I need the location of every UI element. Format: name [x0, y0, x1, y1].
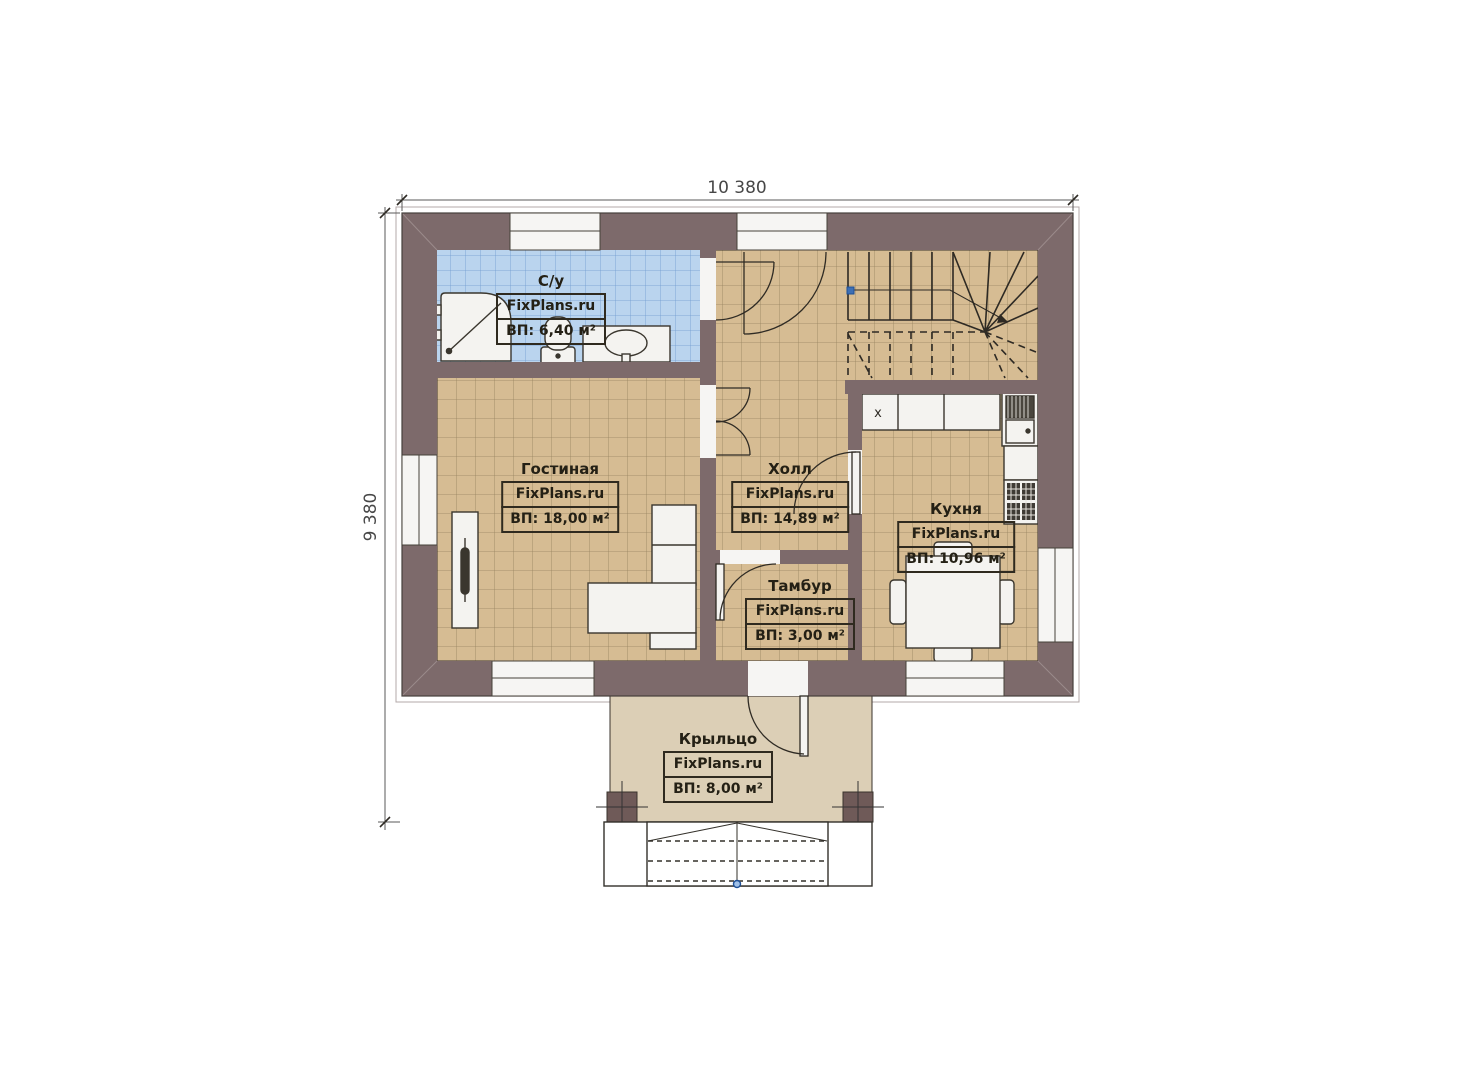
room-label-bathroom: С/у FixPlans.ru ВП: 6,40 м² — [496, 272, 606, 345]
stair-start-grip — [847, 287, 854, 294]
floor-plan-page: x 10 380 9 380 С/у FixPlans.ru ВП: 6,40 … — [0, 0, 1473, 1080]
opening-tambour — [720, 550, 780, 564]
room-name: Крыльцо — [663, 730, 773, 748]
watermark-box: FixPlans.ru — [731, 481, 849, 508]
room-name: Кухня — [897, 500, 1015, 518]
wall-bathroom-south — [437, 362, 716, 378]
opening-bathroom — [700, 258, 716, 320]
floor-plan-drawing: x — [0, 0, 1473, 1080]
watermark-box: FixPlans.ru — [501, 481, 619, 508]
window-bottom-living — [492, 661, 594, 696]
tv-stand — [452, 512, 478, 628]
room-name: С/у — [496, 272, 606, 290]
area-box: ВП: 14,89 м² — [731, 506, 849, 533]
area-box: ВП: 6,40 м² — [496, 318, 606, 345]
area-box: ВП: 8,00 м² — [663, 776, 773, 803]
window-top-bathroom — [510, 213, 600, 250]
room-label-hall: Холл FixPlans.ru ВП: 14,89 м² — [731, 460, 849, 533]
watermark-box: FixPlans.ru — [745, 598, 855, 625]
room-label-kitchen: Кухня FixPlans.ru ВП: 10,96 м² — [897, 500, 1015, 573]
room-label-living: Гостиная FixPlans.ru ВП: 18,00 м² — [501, 460, 619, 533]
window-left-living — [402, 455, 437, 545]
watermark-box: FixPlans.ru — [897, 521, 1015, 548]
area-box: ВП: 10,96 м² — [897, 546, 1015, 573]
watermark-box: FixPlans.ru — [496, 293, 606, 320]
fridge — [1002, 392, 1038, 446]
room-label-porch: Крыльцо FixPlans.ru ВП: 8,00 м² — [663, 730, 773, 803]
kitchen-counter — [862, 394, 1000, 430]
door-top-hall — [737, 213, 827, 250]
window-right-kitchen — [1038, 548, 1073, 642]
area-box: ВП: 18,00 м² — [501, 506, 619, 533]
step-grip-dot — [734, 881, 741, 888]
room-name: Тамбур — [745, 577, 855, 595]
kitchen-counter-right — [1004, 446, 1038, 480]
window-bottom-kitchen — [906, 661, 1004, 696]
dimension-height-label: 9 380 — [361, 493, 381, 542]
area-box: ВП: 3,00 м² — [745, 623, 855, 650]
entry-steps — [604, 822, 872, 888]
opening-entrance — [748, 661, 808, 696]
wall-under-stairs — [845, 380, 1038, 394]
opening-living — [700, 385, 716, 458]
dimension-width-label: 10 380 — [707, 178, 766, 198]
room-name: Гостиная — [501, 460, 619, 478]
room-name: Холл — [731, 460, 849, 478]
cabinet-x-mark: x — [874, 406, 882, 421]
watermark-box: FixPlans.ru — [663, 751, 773, 778]
room-label-tambour: Тамбур FixPlans.ru ВП: 3,00 м² — [745, 577, 855, 650]
